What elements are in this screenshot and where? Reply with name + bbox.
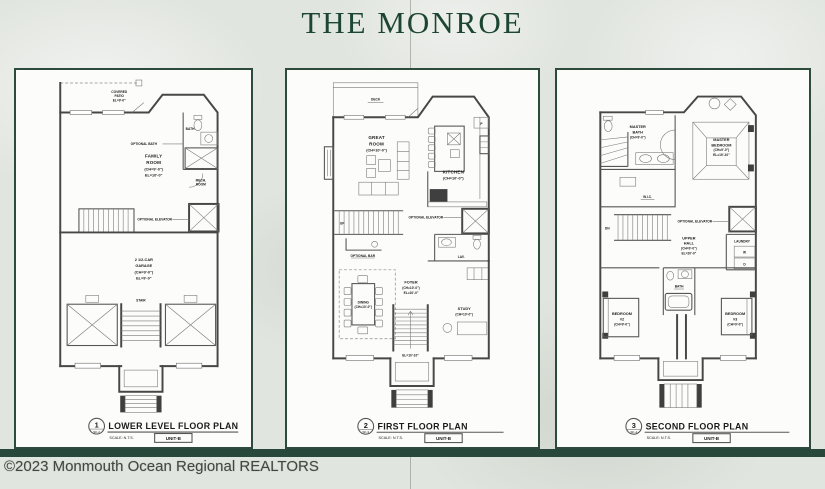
- unit-label: UNIT-B: [436, 436, 452, 441]
- deck-label: DECK: [371, 98, 381, 102]
- kitchen: P KITCHEN (CH=10'-0"): [428, 117, 489, 207]
- dn-label: DN: [605, 226, 610, 230]
- foyer-label: FOYER (CH=10'-0") EL=10'-0": [402, 281, 420, 295]
- walk-in-closet: W.I.C.: [600, 169, 675, 206]
- second-titleblock: 3 SK-4 SECOND FLOOR PLAN SCALE: N.T.S. U…: [626, 418, 789, 442]
- lower-stairs: [79, 209, 134, 233]
- lower-level-panel: BATH OPTIONAL BATH FAMILY ROOM (CH=9'-0"…: [14, 68, 253, 449]
- svg-text:(CH=9'-0"): (CH=9'-0"): [681, 247, 697, 251]
- svg-text:HALL: HALL: [684, 242, 695, 246]
- second-stairs-down: DN: [605, 215, 671, 241]
- second-floor-panel: MASTER BATH (CH=9'-0") MASTER BEDROOM (C…: [555, 68, 811, 449]
- master-bath: MASTER BATH (CH=9'-0"): [600, 115, 675, 169]
- svg-text:(CH=10'-0"): (CH=10'-0"): [402, 286, 420, 290]
- optional-bath-label: OPTIONAL BATH: [131, 142, 158, 146]
- plan-number: 3: [632, 421, 636, 430]
- bedroom-3: BEDROOM #3 (CH=9'-0"): [721, 291, 755, 338]
- lower-elevator: OPTIONAL ELEVATOR: [137, 204, 218, 232]
- svg-text:EL=10'-0": EL=10'-0": [404, 291, 419, 295]
- plan-scale: SCALE: N.T.S.: [379, 436, 404, 440]
- plan-title: LOWER LEVEL FLOOR PLAN: [108, 421, 238, 431]
- garage-doors: [67, 295, 215, 345]
- svg-text:(CH=10'-0"): (CH=10'-0"): [366, 149, 387, 153]
- hall-bath: BATH: [663, 268, 695, 315]
- wic-label: W.I.C.: [643, 195, 652, 199]
- plan-scale: SCALE: N.T.S.: [647, 436, 672, 440]
- bath-label: BATH: [675, 285, 684, 289]
- dryer-label: D: [743, 262, 746, 266]
- svg-text:GREAT: GREAT: [368, 135, 384, 140]
- svg-text:ROOM: ROOM: [196, 183, 206, 187]
- first-titleblock: 2 SK-3 FIRST FLOOR PLAN SCALE: N.T.S. UN…: [358, 418, 504, 442]
- upper-hall-label: UPPER HALL (CH=9'-0") EL=20'-0": [681, 236, 697, 255]
- svg-text:MECH.: MECH.: [196, 178, 207, 182]
- svg-text:DINING: DINING: [358, 300, 370, 304]
- optional-elevator-label: OPTIONAL ELEVATOR: [408, 216, 443, 220]
- bath-label: BATH: [186, 127, 195, 131]
- lower-titleblock: 1 SK-2 LOWER LEVEL FLOOR PLAN SCALE: N.T…: [89, 418, 239, 442]
- first-floor-panel: DECK GREAT ROOM (CH=10'-0"): [285, 68, 540, 449]
- laundry: LAUNDRY W D: [726, 234, 756, 269]
- deck: DECK: [333, 83, 418, 117]
- stair-corridor-walls: [677, 315, 686, 358]
- optional-elevator-label: OPTIONAL ELEVATOR: [678, 220, 713, 224]
- svg-text:KITCHEN: KITCHEN: [443, 169, 464, 174]
- svg-text:GARAGE: GARAGE: [135, 264, 152, 268]
- lav: LAV.: [428, 234, 489, 261]
- study: STUDY (CH=10'-0"): [443, 268, 489, 335]
- svg-text:BATH: BATH: [633, 130, 644, 134]
- optional-elevator-label: OPTIONAL ELEVATOR: [137, 218, 172, 222]
- garage-label: 2 1/2-CAR GARAGE (CH=9'-0") EL=9'-0": [135, 258, 154, 281]
- first-walls: [333, 97, 489, 359]
- svg-text:FAMILY: FAMILY: [145, 154, 162, 159]
- great-room-label: GREAT ROOM (CH=10'-0"): [366, 135, 387, 153]
- svg-text:EL=9'-0": EL=9'-0": [136, 277, 152, 281]
- svg-text:(CH=9'-0"): (CH=9'-0"): [614, 322, 630, 326]
- svg-text:#2: #2: [620, 318, 624, 322]
- garage-center-stair: STAIR: [121, 298, 160, 346]
- svg-text:EL=19'-10": EL=19'-10": [713, 153, 730, 157]
- second-stoop-roof: [658, 358, 702, 407]
- copyright-text: ©2023 Monmouth Ocean Regional REALTORS: [4, 458, 319, 475]
- svg-text:(CH=9'-0"): (CH=9'-0"): [630, 135, 646, 139]
- lower-stoop: [119, 366, 162, 412]
- up-label: UP: [340, 222, 345, 226]
- svg-text:EL=9'-0": EL=9'-0": [113, 99, 126, 103]
- svg-text:PATIO: PATIO: [115, 94, 125, 98]
- svg-text:(CH=10'-0"): (CH=10'-0"): [355, 305, 373, 309]
- first-floor-plan-drawing: DECK GREAT ROOM (CH=10'-0"): [287, 70, 538, 447]
- svg-text:MASTER: MASTER: [630, 125, 646, 129]
- optional-bar: OPTIONAL BAR: [346, 238, 381, 258]
- svg-text:#3: #3: [733, 318, 737, 322]
- svg-text:FOYER: FOYER: [404, 281, 417, 285]
- lower-bath: BATH: [183, 112, 217, 169]
- pantry-label: P: [480, 122, 483, 126]
- lower-level-plan-drawing: BATH OPTIONAL BATH FAMILY ROOM (CH=9'-0"…: [16, 70, 251, 447]
- svg-text:BEDROOM: BEDROOM: [725, 312, 745, 316]
- washer-label: W: [743, 251, 747, 255]
- family-room-label: FAMILY ROOM (CH=9'-0") EL=10'-0": [144, 154, 163, 178]
- svg-text:COVERED: COVERED: [111, 90, 128, 94]
- second-elevator: OPTIONAL ELEVATOR: [678, 207, 756, 232]
- svg-text:MASTER: MASTER: [713, 138, 729, 142]
- svg-text:(CH=9'-0"): (CH=9'-0"): [727, 322, 743, 326]
- first-porch: [390, 358, 433, 407]
- plan-scale: SCALE: N.T.S.: [109, 436, 133, 440]
- svg-text:ROOM: ROOM: [369, 141, 384, 146]
- svg-text:2 1/2-CAR: 2 1/2-CAR: [135, 258, 153, 262]
- first-elevator: OPTIONAL ELEVATOR: [408, 171, 488, 233]
- laundry-label: LAUNDRY: [734, 239, 751, 243]
- lav-label: LAV.: [458, 255, 465, 259]
- optional-bar-label: OPTIONAL BAR: [351, 254, 376, 258]
- plan-number: 2: [364, 421, 368, 430]
- svg-text:(CH=10'-0"): (CH=10'-0"): [455, 313, 473, 317]
- svg-text:(CH=9'-0"): (CH=9'-0"): [144, 167, 163, 171]
- first-main-stairs: EL=10'-10": [393, 305, 427, 357]
- covered-patio-label: COVERED PATIO EL=9'-0": [111, 90, 128, 103]
- brochure-page: THE MONROE BATH OPTIONAL BATH FAMILY: [0, 0, 825, 489]
- svg-text:EL=10'-0": EL=10'-0": [145, 173, 163, 177]
- svg-text:ROOM: ROOM: [146, 160, 161, 165]
- svg-text:EL=20'-0": EL=20'-0": [682, 252, 697, 256]
- second-floor-plan-drawing: MASTER BATH (CH=9'-0") MASTER BEDROOM (C…: [557, 70, 809, 447]
- sheet-number: SK-4: [630, 430, 637, 434]
- page-title: THE MONROE: [0, 5, 825, 41]
- svg-text:BEDROOM: BEDROOM: [711, 143, 731, 147]
- mech-room: MECH. ROOM: [189, 173, 206, 187]
- fireplace: [324, 147, 333, 179]
- svg-text:(CH=10'-0"): (CH=10'-0"): [443, 176, 464, 180]
- green-divider-band: [0, 449, 825, 457]
- svg-text:UPPER: UPPER: [682, 236, 695, 240]
- unit-label: UNIT-B: [704, 436, 720, 441]
- svg-text:(CH=9'-0"): (CH=9'-0"): [714, 148, 730, 152]
- svg-text:(CH=9'-0"): (CH=9'-0"): [135, 271, 154, 275]
- stair-elevation-label: EL=10'-10": [402, 353, 419, 357]
- dining-room: DINING (CH=10'-0"): [339, 270, 395, 339]
- sheet-number: SK-3: [362, 430, 369, 434]
- sheet-number: SK-2: [93, 430, 100, 434]
- plan-title: FIRST FLOOR PLAN: [378, 421, 468, 431]
- master-bedroom: MASTER BEDROOM (CH=9'-0") EL=19'-10": [693, 98, 754, 179]
- first-stairs-up: UP: [334, 211, 403, 235]
- stair-label: STAIR: [136, 298, 146, 302]
- unit-label: UNIT-B: [166, 436, 182, 441]
- lower-front-wall: [60, 363, 217, 368]
- plan-title: SECOND FLOOR PLAN: [646, 421, 749, 431]
- bedroom-2: BEDROOM #2 (CH=9'-0"): [602, 291, 638, 338]
- svg-text:STUDY: STUDY: [458, 307, 471, 311]
- plan-number: 1: [95, 421, 99, 430]
- svg-text:BEDROOM: BEDROOM: [612, 312, 632, 316]
